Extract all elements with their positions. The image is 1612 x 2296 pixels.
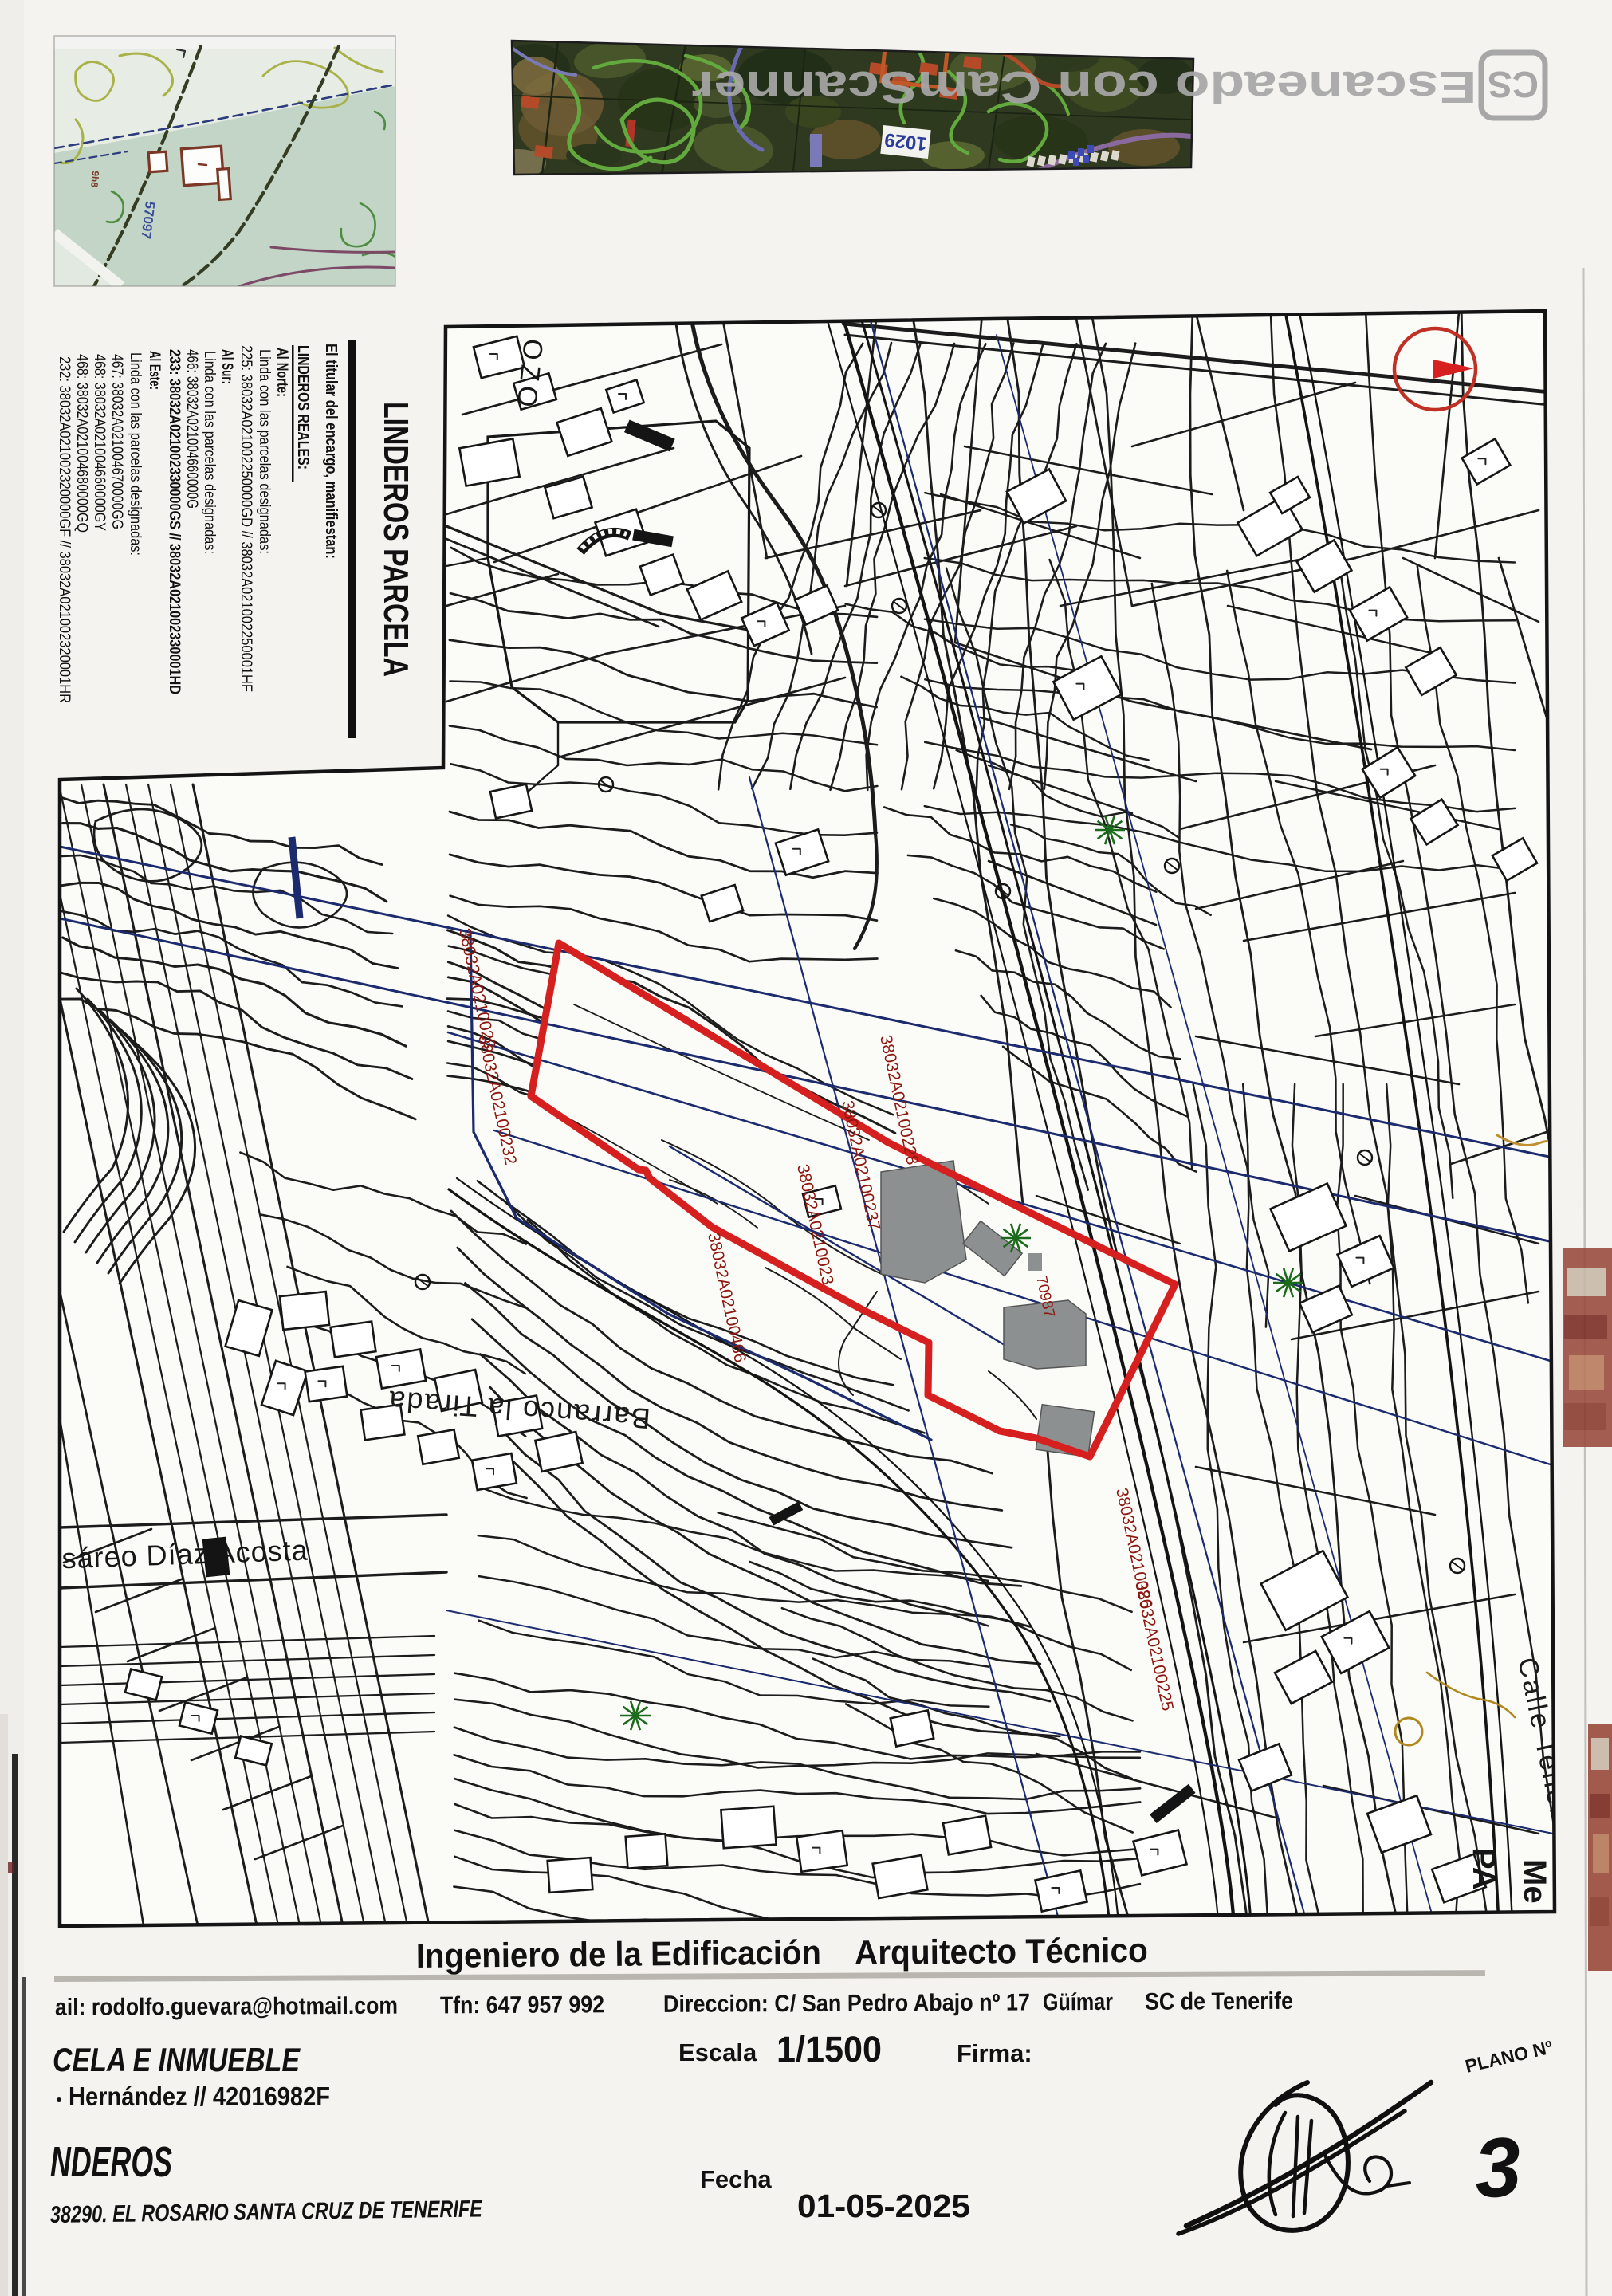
svg-text:Hernández // 42016982F: Hernández // 42016982F	[69, 2082, 330, 2111]
svg-text:233: 38032A021002330000GS // 3: 233: 38032A021002330000GS // 38032A02100…	[166, 349, 183, 694]
svg-text:ail: rodolfo.guevara@hotmail.: ail: rodolfo.guevara@hotmail.com	[55, 1993, 398, 2021]
svg-text:NDEROS: NDEROS	[50, 2138, 172, 2186]
svg-text:Firma:: Firma:	[957, 2039, 1032, 2067]
svg-text:Linda con las parcelas designa: Linda con las parcelas designadas:	[256, 349, 273, 554]
svg-text:CS: CS	[1488, 64, 1539, 105]
svg-text:1029: 1029	[883, 128, 928, 154]
svg-text:3: 3	[1471, 2120, 1524, 2216]
svg-text:225: 38032A021002250000GD // 3: 225: 38032A021002250000GD // 38032A02100…	[238, 345, 254, 692]
svg-text:Al Este:: Al Este:	[146, 351, 163, 390]
svg-text:468: 38032A021004660000GY: 468: 38032A021004660000GY	[91, 354, 108, 531]
svg-text:1/1500: 1/1500	[777, 2029, 882, 2070]
svg-text:Direccion: C/ San Pedro Abajo: Direccion: C/ San Pedro Abajo nº 17	[663, 1989, 1030, 2017]
svg-text:Linda con las parcelas designa: Linda con las parcelas designadas:	[127, 352, 144, 556]
svg-text:Linda con las parcelas designa: Linda con las parcelas designadas:	[201, 351, 218, 554]
svg-text:Me: Me	[1517, 1859, 1552, 1904]
svg-text:Tfn: 647 957 992: Tfn: 647 957 992	[440, 1991, 604, 2019]
svg-text:LINDEROS REALES:: LINDEROS REALES:	[294, 345, 312, 470]
svg-text:468: 38032A021004680000GQ: 468: 38032A021004680000GQ	[73, 354, 90, 533]
svg-text:01-05-2025: 01-05-2025	[797, 2188, 970, 2224]
svg-text:Güímar: Güímar	[1043, 1989, 1113, 2015]
svg-text:LINDEROS PARCELA: LINDEROS PARCELA	[376, 402, 415, 677]
svg-text:467: 38032A021004670000GG: 467: 38032A021004670000GG	[108, 354, 125, 529]
svg-text:Al Sur:: Al Sur:	[218, 349, 235, 384]
svg-text:Al Norte:: Al Norte:	[273, 348, 290, 397]
svg-text:9h8: 9h8	[88, 171, 101, 188]
svg-text:El titular del encargo, manifi: El titular del encargo, manifiestan:	[322, 344, 340, 559]
svg-text:Fecha: Fecha	[700, 2165, 772, 2193]
svg-text:CELA E INMUEBLE: CELA E INMUEBLE	[53, 2041, 301, 2078]
svg-text:Arquitecto Técnico: Arquitecto Técnico	[855, 1932, 1148, 1972]
svg-text:SC de Tenerife: SC de Tenerife	[1145, 1988, 1293, 2015]
svg-text:466: 38032A021004660000G: 466: 38032A021004660000G	[183, 349, 200, 509]
svg-text:PA: PA	[1466, 1848, 1501, 1890]
svg-text:Ingeniero de la Edificación: Ingeniero de la Edificación	[416, 1934, 821, 1976]
svg-text:232: 38032A021002320000GF // 3: 232: 38032A021002320000GF // 38032A02100…	[56, 356, 73, 703]
svg-text:Escala: Escala	[678, 2038, 757, 2066]
svg-text:Escaneado con CamScanner: Escaneado con CamScanner	[692, 61, 1477, 112]
